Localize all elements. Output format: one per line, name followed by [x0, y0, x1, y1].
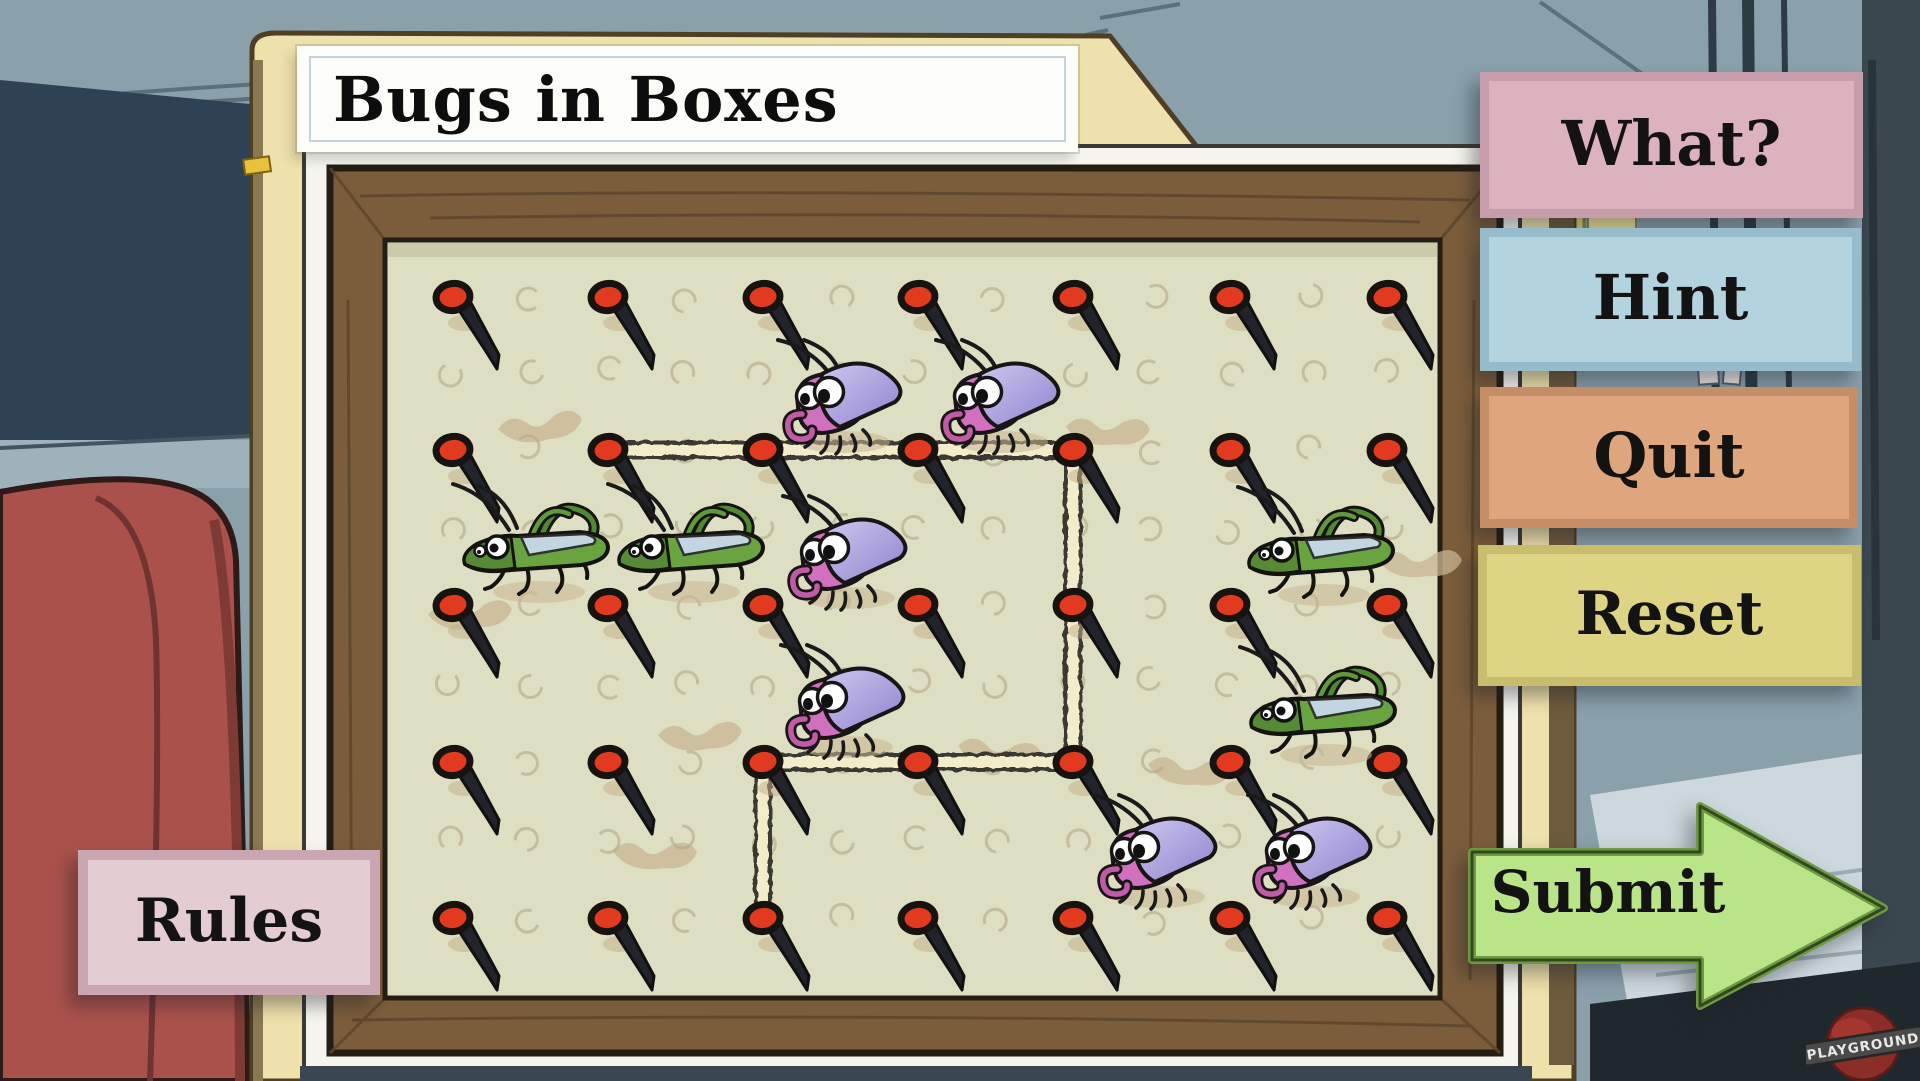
what-button-label: What?: [1562, 107, 1782, 180]
bug-board: [330, 168, 1500, 1053]
submit-button-label: Submit: [1478, 858, 1738, 926]
title-banner-border: Bugs in Boxes: [309, 56, 1066, 142]
quit-button[interactable]: Quit: [1480, 387, 1858, 528]
bug-shadow: [1280, 744, 1372, 766]
quit-button-label: Quit: [1593, 419, 1744, 492]
playground-logo: PLAYGROUND: [1806, 1002, 1920, 1081]
page-title: Bugs in Boxes: [311, 63, 839, 136]
bug-shadow: [1278, 584, 1370, 606]
rules-button-label: Rules: [135, 886, 323, 956]
rules-button[interactable]: Rules: [78, 850, 380, 995]
hint-button-label: Hint: [1593, 261, 1749, 334]
what-button[interactable]: What?: [1480, 72, 1863, 218]
hint-button[interactable]: Hint: [1480, 228, 1861, 371]
title-banner: Bugs in Boxes: [297, 46, 1078, 152]
bug-shadow: [493, 581, 585, 603]
bug-shadow: [648, 581, 740, 603]
submit-button[interactable]: Submit: [1468, 798, 1892, 1014]
reset-button-label: Reset: [1576, 579, 1764, 649]
reset-button[interactable]: Reset: [1478, 545, 1861, 686]
game-screen: Bugs in Boxes What? Hint Quit Reset Rule…: [0, 0, 1920, 1081]
